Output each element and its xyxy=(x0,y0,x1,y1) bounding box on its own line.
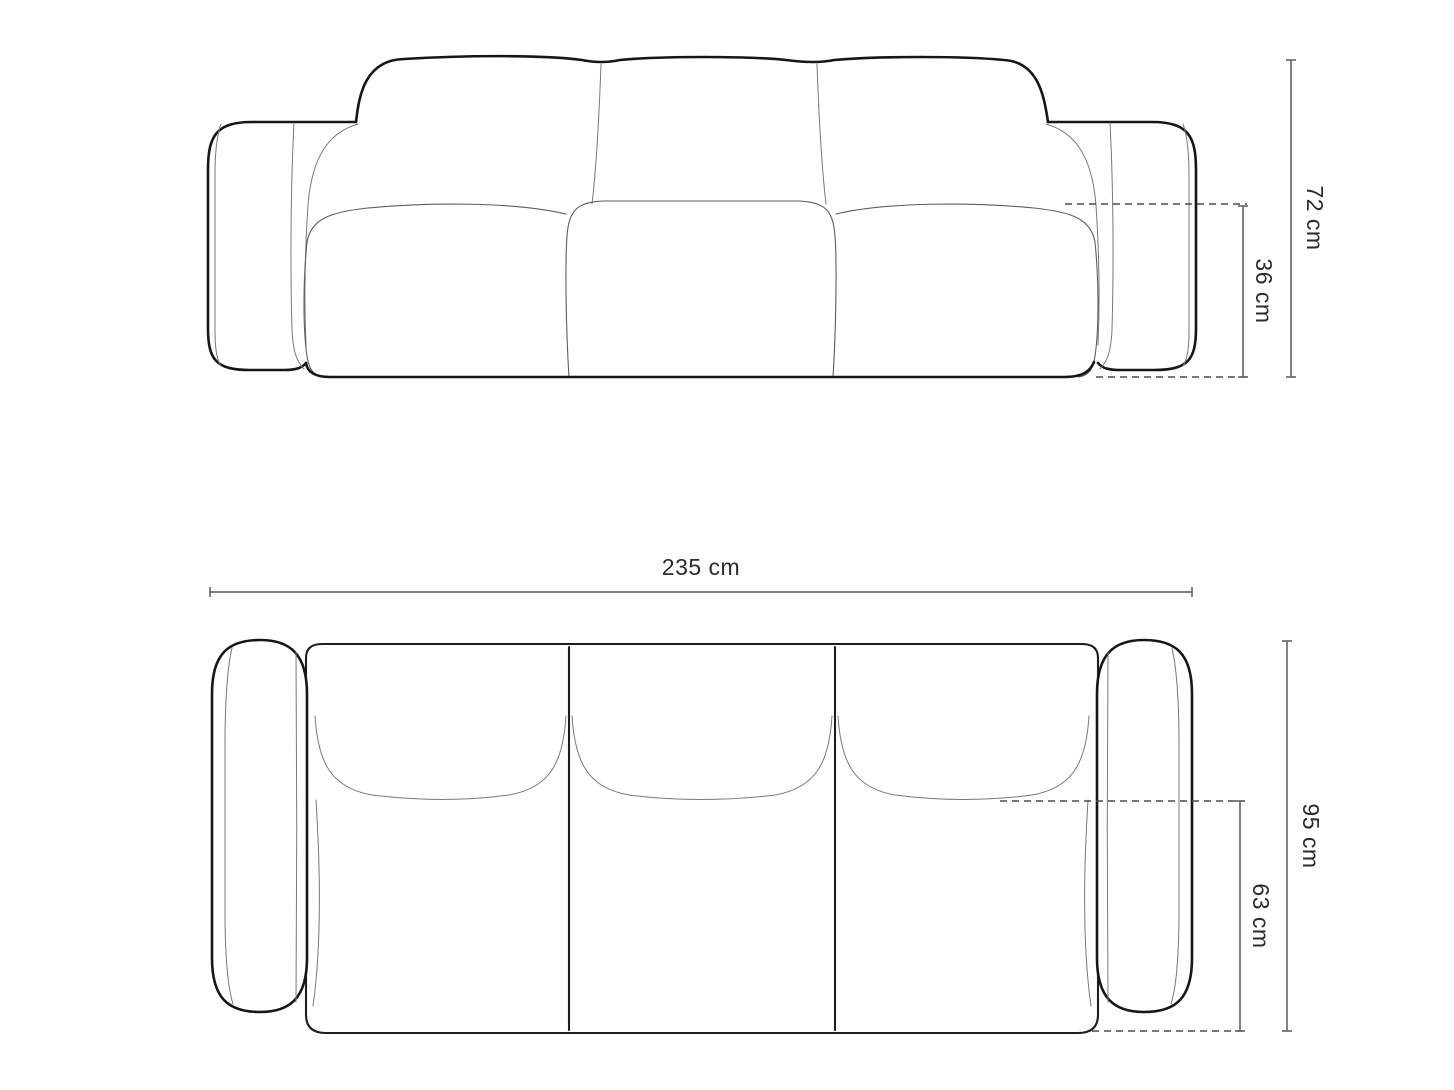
sofa-base-line-front xyxy=(306,362,1094,377)
top-plan-view: 235 cm 63 cm xyxy=(210,554,1324,1033)
total-width-label: 235 cm xyxy=(662,554,740,580)
total-height-label: 72 cm xyxy=(1302,185,1328,250)
seat-cushion-middle-front xyxy=(566,201,836,377)
seat-depth-label: 63 cm xyxy=(1248,883,1274,948)
seat-seam-plan-right xyxy=(1085,800,1091,1006)
dimension-seat-height: 36 cm xyxy=(1238,206,1277,377)
armrest-right-front xyxy=(1048,122,1196,370)
backrest-split-seam-right xyxy=(817,64,826,204)
diagram-canvas: 36 cm 72 cm 235 cm xyxy=(0,0,1454,1090)
total-depth-label: 95 cm xyxy=(1298,803,1324,868)
armrest-left-back-seam xyxy=(305,124,358,345)
dimension-total-depth: 95 cm xyxy=(1282,641,1324,1031)
backrest-outline xyxy=(356,56,1048,122)
front-elevation-view: 36 cm 72 cm xyxy=(208,56,1328,377)
back-cushion-plan-left xyxy=(315,716,566,800)
seat-seam-plan-left xyxy=(313,800,319,1006)
armrest-left-seam-outer xyxy=(215,124,221,366)
sofa-dimension-diagram: 36 cm 72 cm 235 cm xyxy=(0,0,1454,1090)
seat-cushion-left-front xyxy=(304,204,566,377)
armrest-right-back-seam xyxy=(1046,124,1099,345)
armrest-right-seam-inner xyxy=(1100,123,1113,369)
dimension-total-width: 235 cm xyxy=(210,554,1192,597)
dimension-total-height: 72 cm xyxy=(1286,60,1328,377)
seat-height-label: 36 cm xyxy=(1251,258,1277,323)
dimension-seat-depth: 63 cm xyxy=(1235,801,1274,1031)
armrest-left-seam-inner xyxy=(291,123,304,369)
backrest-split-seam-left xyxy=(592,64,601,204)
back-cushion-plan-middle xyxy=(572,716,832,800)
armrest-right-seam-outer xyxy=(1183,124,1189,366)
sofa-body-plan xyxy=(306,644,1098,1033)
back-cushion-plan-right xyxy=(838,716,1089,800)
seat-cushion-right-front xyxy=(836,204,1098,377)
armrest-left-front xyxy=(208,122,356,370)
